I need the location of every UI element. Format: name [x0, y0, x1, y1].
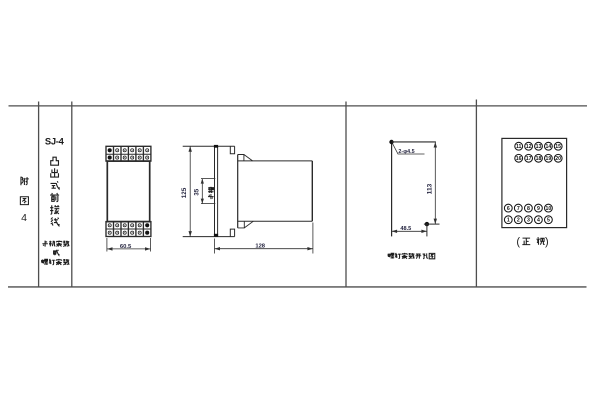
svg-text:20: 20 [555, 156, 561, 162]
svg-text:1: 1 [507, 218, 510, 224]
svg-text:10: 10 [546, 206, 552, 212]
svg-text:9: 9 [537, 206, 540, 212]
svg-text:2: 2 [517, 218, 520, 224]
svg-text:11: 11 [516, 144, 522, 150]
svg-text:SJ-4: SJ-4 [45, 136, 65, 147]
svg-text:18: 18 [536, 156, 542, 162]
svg-text:): ) [545, 236, 549, 248]
svg-text:6: 6 [507, 206, 510, 212]
svg-text:12: 12 [526, 144, 532, 150]
svg-text:15: 15 [555, 144, 561, 150]
svg-text:48.5: 48.5 [400, 226, 411, 232]
svg-text:128: 128 [255, 243, 265, 249]
svg-text:13: 13 [536, 144, 542, 150]
svg-text:5: 5 [547, 218, 550, 224]
svg-text:35: 35 [193, 188, 200, 195]
svg-text:7: 7 [517, 206, 520, 212]
svg-text:3: 3 [527, 218, 530, 224]
svg-text:4: 4 [21, 212, 27, 224]
svg-text:14: 14 [546, 144, 552, 150]
svg-text:8: 8 [527, 206, 530, 212]
svg-text:113: 113 [427, 183, 434, 194]
svg-text:125: 125 [181, 187, 188, 198]
svg-text:2-φ4.5: 2-φ4.5 [398, 149, 414, 155]
svg-text:(: ( [516, 236, 520, 248]
svg-text:19: 19 [546, 156, 552, 162]
svg-text:4: 4 [537, 218, 540, 224]
svg-text:17: 17 [526, 156, 532, 162]
svg-text:16: 16 [516, 156, 522, 162]
svg-text:60.5: 60.5 [120, 244, 132, 250]
